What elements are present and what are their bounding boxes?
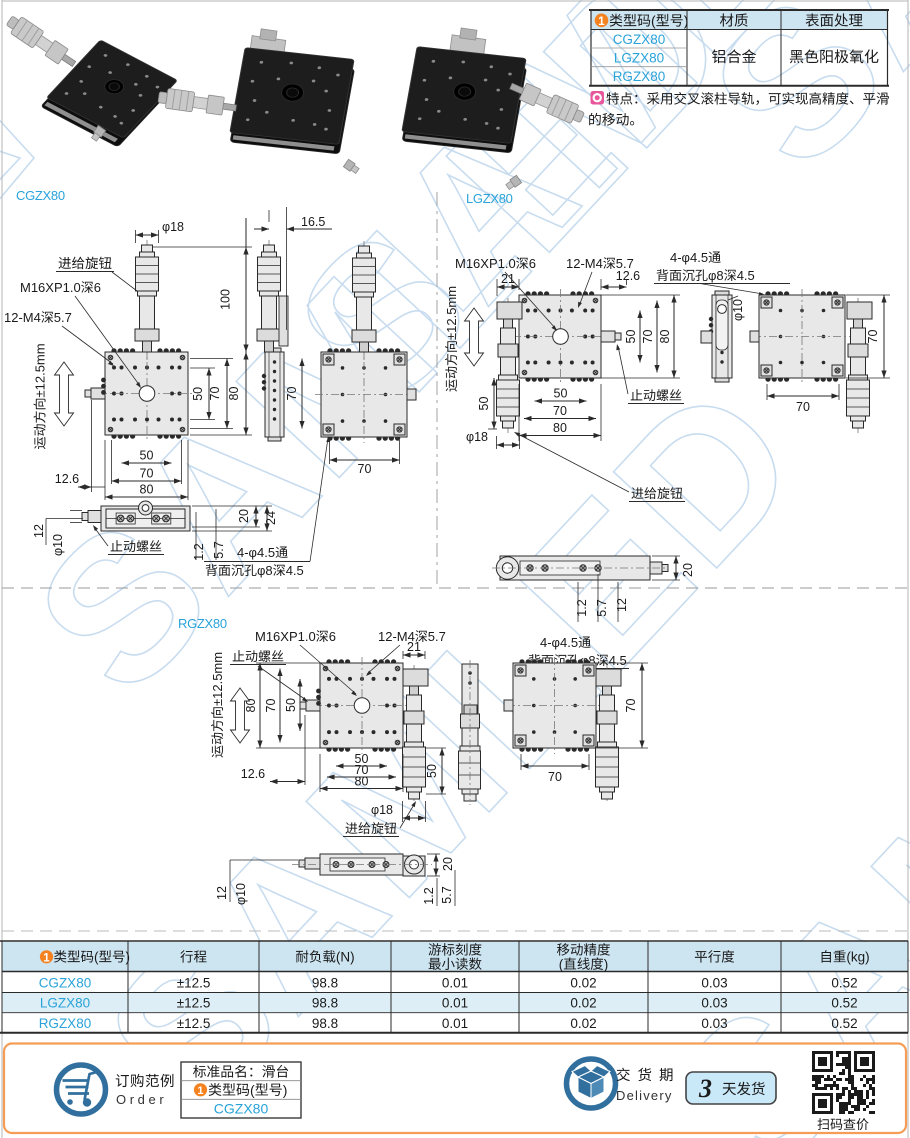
svg-text:70: 70 xyxy=(624,699,638,713)
svg-text:φ8: φ8 xyxy=(257,563,273,578)
svg-text:0.52: 0.52 xyxy=(831,1016,857,1031)
svg-text:80: 80 xyxy=(355,775,369,789)
svg-text:CGZX80: CGZX80 xyxy=(613,32,666,47)
svg-text:70: 70 xyxy=(208,387,222,401)
svg-text:RGZX80: RGZX80 xyxy=(178,616,227,631)
svg-text:0.01: 0.01 xyxy=(442,1016,468,1031)
svg-text:70: 70 xyxy=(264,699,278,713)
svg-text:±12.5: ±12.5 xyxy=(177,1016,211,1031)
svg-text:CGZX80: CGZX80 xyxy=(214,1101,269,1117)
svg-text:±12.5: ±12.5 xyxy=(177,976,211,991)
svg-text:0.03: 0.03 xyxy=(701,976,727,991)
svg-text:70: 70 xyxy=(140,467,154,481)
svg-text:70: 70 xyxy=(285,387,299,401)
svg-text:RGZX80: RGZX80 xyxy=(613,69,666,84)
svg-text:0.02: 0.02 xyxy=(570,1016,596,1031)
svg-text:1: 1 xyxy=(43,952,50,964)
svg-text:M16XP1.0: M16XP1.0 xyxy=(20,280,81,295)
svg-text:50: 50 xyxy=(624,330,638,344)
svg-text:20: 20 xyxy=(681,563,695,577)
svg-text:1.2: 1.2 xyxy=(192,543,206,560)
svg-text:80: 80 xyxy=(140,483,154,497)
svg-text:50: 50 xyxy=(191,387,205,401)
svg-text:50: 50 xyxy=(554,387,568,401)
svg-text:0.52: 0.52 xyxy=(831,996,857,1011)
svg-text:±12.5mm: ±12.5mm xyxy=(210,652,225,706)
svg-text:5.7: 5.7 xyxy=(440,886,454,903)
svg-text:(: ( xyxy=(651,13,656,29)
svg-text:φ10: φ10 xyxy=(731,299,745,321)
svg-text:5.7: 5.7 xyxy=(54,310,72,325)
svg-text:LGZX80: LGZX80 xyxy=(466,191,513,206)
svg-text:RGZX80: RGZX80 xyxy=(39,1016,92,1031)
svg-text:0.03: 0.03 xyxy=(701,1016,727,1031)
svg-text:O r d e r: O r d e r xyxy=(116,1092,164,1107)
svg-text:4-φ4.5: 4-φ4.5 xyxy=(237,545,275,560)
svg-text:5.7: 5.7 xyxy=(428,629,446,644)
svg-text:1.2: 1.2 xyxy=(575,599,589,616)
svg-text:Delivery: Delivery xyxy=(616,1088,673,1103)
svg-text:98.8: 98.8 xyxy=(312,996,338,1011)
svg-text:6: 6 xyxy=(329,629,336,644)
svg-text:5.7: 5.7 xyxy=(616,256,634,271)
svg-text:M16XP1.0: M16XP1.0 xyxy=(455,256,516,271)
svg-text:): ) xyxy=(126,950,131,965)
svg-text:12.6: 12.6 xyxy=(55,472,79,486)
svg-text:4.5: 4.5 xyxy=(286,563,304,578)
svg-text:±12.5: ±12.5 xyxy=(177,996,211,1011)
svg-text:0.01: 0.01 xyxy=(442,976,468,991)
svg-text:CGZX80: CGZX80 xyxy=(16,188,65,203)
svg-text:100: 100 xyxy=(219,289,233,310)
svg-text:): ) xyxy=(684,13,689,29)
svg-text:70: 70 xyxy=(358,462,372,476)
svg-text:0.01: 0.01 xyxy=(442,996,468,1011)
svg-text:12: 12 xyxy=(215,886,229,900)
svg-text:21: 21 xyxy=(501,272,515,286)
svg-text:φ10: φ10 xyxy=(51,534,65,556)
svg-text:φ18: φ18 xyxy=(466,430,488,444)
svg-text:70: 70 xyxy=(553,404,567,418)
svg-text:3: 3 xyxy=(698,1074,712,1103)
svg-text:4-φ4.5: 4-φ4.5 xyxy=(540,635,578,650)
svg-text:70: 70 xyxy=(796,400,810,414)
svg-text:): ) xyxy=(283,1082,288,1098)
svg-text:φ10: φ10 xyxy=(234,883,248,905)
svg-text:1: 1 xyxy=(197,1085,203,1097)
svg-text:4-φ4.5: 4-φ4.5 xyxy=(670,250,708,265)
svg-text:12: 12 xyxy=(615,598,629,612)
svg-text:(: ( xyxy=(250,1082,255,1098)
svg-text:(kg): (kg) xyxy=(846,950,869,965)
svg-text:0.02: 0.02 xyxy=(570,996,596,1011)
svg-text:6: 6 xyxy=(94,280,101,295)
svg-text:1: 1 xyxy=(598,16,605,28)
svg-text:50: 50 xyxy=(477,397,491,411)
svg-text:6: 6 xyxy=(529,256,536,271)
svg-text:80: 80 xyxy=(553,421,567,435)
svg-text:±12.5mm: ±12.5mm xyxy=(33,343,48,397)
svg-text:50: 50 xyxy=(284,698,298,712)
svg-text:φ18: φ18 xyxy=(371,803,393,817)
svg-text:70: 70 xyxy=(641,330,655,344)
svg-text:): ) xyxy=(604,957,609,972)
svg-text:4.5: 4.5 xyxy=(609,653,627,668)
svg-text:12-M4: 12-M4 xyxy=(4,310,41,325)
svg-text:24: 24 xyxy=(264,511,278,525)
svg-text:M16XP1.0: M16XP1.0 xyxy=(255,629,316,644)
svg-text:80: 80 xyxy=(227,387,241,401)
svg-text:16.5: 16.5 xyxy=(301,215,325,229)
svg-text:20: 20 xyxy=(237,509,251,523)
svg-text:φ8: φ8 xyxy=(708,268,724,283)
svg-text:4.5: 4.5 xyxy=(737,268,755,283)
svg-text:50: 50 xyxy=(425,764,439,778)
svg-text:80: 80 xyxy=(658,330,672,344)
svg-text:LGZX80: LGZX80 xyxy=(40,996,90,1011)
svg-text:±12.5mm: ±12.5mm xyxy=(444,286,459,340)
svg-text:5.7: 5.7 xyxy=(212,541,226,558)
svg-text:12.6: 12.6 xyxy=(241,767,265,781)
svg-text:50: 50 xyxy=(140,449,154,463)
svg-text:(: ( xyxy=(559,957,564,972)
svg-text:CGZX80: CGZX80 xyxy=(39,976,92,991)
svg-text:12: 12 xyxy=(32,524,46,538)
svg-text:20: 20 xyxy=(441,857,455,871)
svg-text:φ18: φ18 xyxy=(162,220,184,234)
svg-text:12-M4: 12-M4 xyxy=(378,629,415,644)
svg-text:70: 70 xyxy=(548,770,562,784)
svg-text:98.8: 98.8 xyxy=(312,1016,338,1031)
svg-text:12.6: 12.6 xyxy=(616,269,640,283)
svg-text:(: ( xyxy=(94,950,99,965)
svg-text:(N): (N) xyxy=(336,950,355,965)
svg-text:0.02: 0.02 xyxy=(570,976,596,991)
svg-text:5.7: 5.7 xyxy=(595,599,609,616)
svg-text:0.03: 0.03 xyxy=(701,996,727,1011)
svg-text:LGZX80: LGZX80 xyxy=(614,50,664,65)
svg-text:0.52: 0.52 xyxy=(831,976,857,991)
svg-text:70: 70 xyxy=(866,330,880,344)
svg-text:98.8: 98.8 xyxy=(312,976,338,991)
svg-text:1.2: 1.2 xyxy=(422,887,436,904)
svg-text:12-M4: 12-M4 xyxy=(566,256,603,271)
